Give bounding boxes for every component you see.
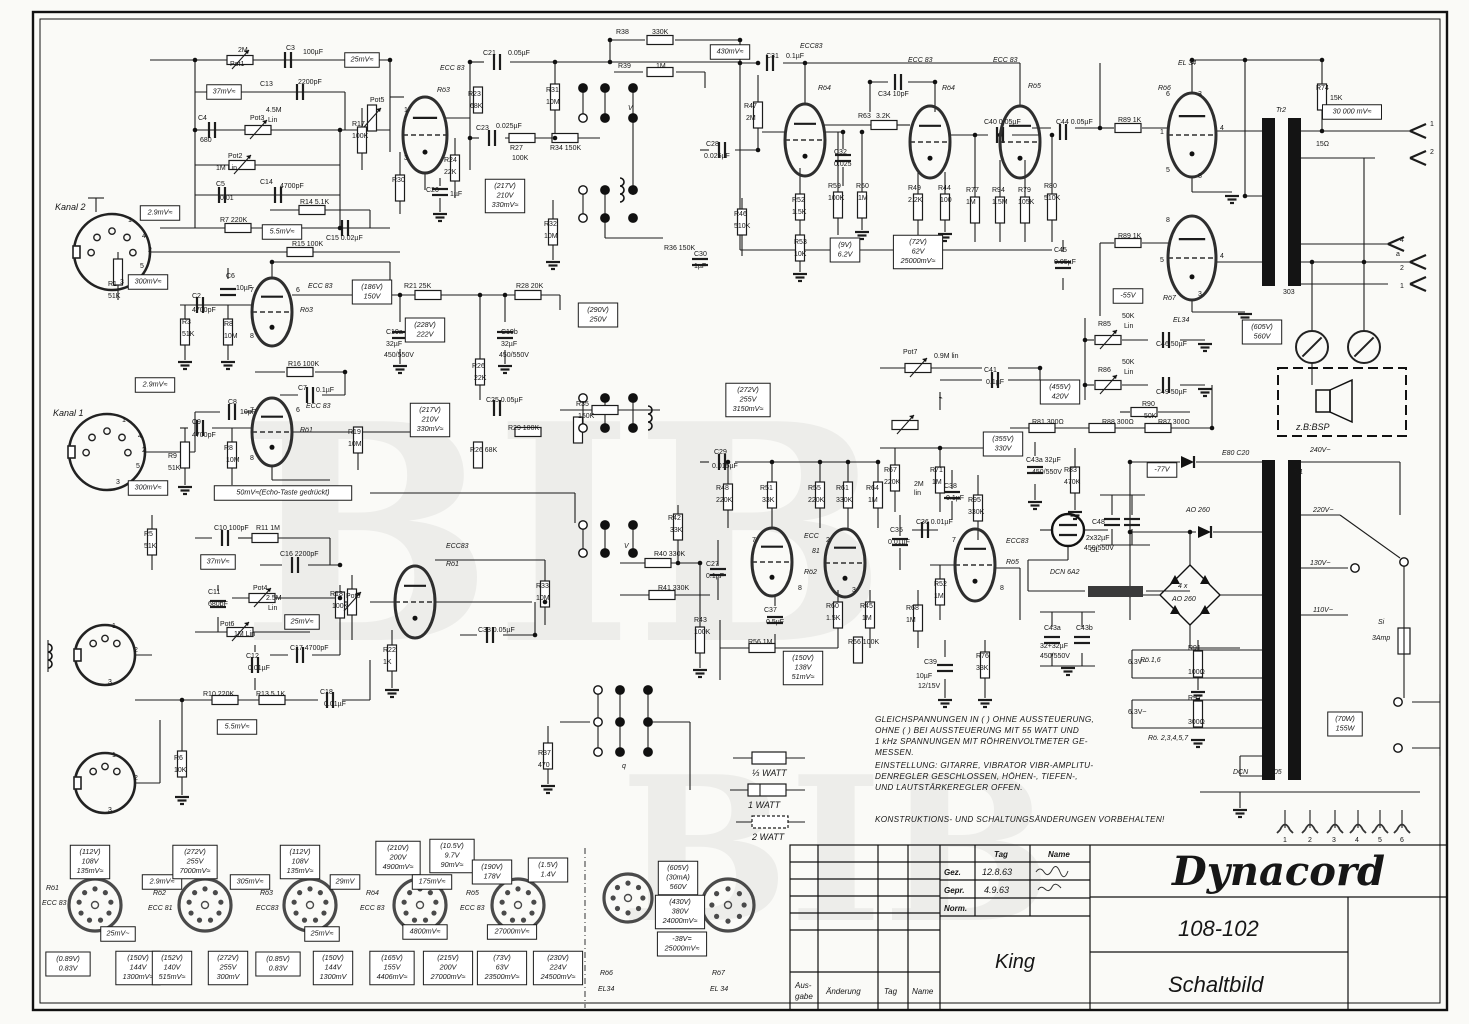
component-label: 0.01 — [220, 195, 234, 202]
socket-pin — [402, 900, 407, 905]
component-label: R49 — [908, 185, 921, 192]
component-label: Lin — [268, 117, 277, 124]
component-label: R81 300Ω — [1032, 419, 1064, 426]
socket-pin — [742, 902, 747, 907]
din-pin — [125, 449, 131, 455]
junction-dot — [478, 293, 483, 298]
note-line: GLEICHSPANNUNGEN IN ( ) OHNE AUSSTEUERUN… — [875, 715, 1094, 724]
component-label: 0.1µF — [946, 495, 964, 502]
component-label: R60 — [826, 603, 839, 610]
component-label: C34 10pF — [878, 91, 909, 98]
switch-contact — [629, 424, 637, 432]
component-label: 51K — [182, 331, 195, 338]
component-label: 3 — [1332, 837, 1336, 844]
component-label: C19a — [386, 329, 403, 336]
component-label: R42 — [668, 515, 681, 522]
socket-pin — [98, 918, 103, 923]
component-label: 2 — [148, 247, 152, 254]
component-label: 1M — [932, 479, 942, 486]
component-label: ECC83 — [800, 43, 823, 50]
component-label: Lin — [1124, 369, 1133, 376]
component-label: EL34 — [598, 986, 614, 993]
component-label: 100K — [352, 133, 369, 140]
switch-contact — [1400, 558, 1408, 566]
component-label: 8 — [798, 585, 802, 592]
component-label: C18 — [320, 689, 333, 696]
component-label: Rö7 — [1163, 295, 1177, 302]
junction-dot — [338, 226, 343, 231]
component-label: Rö5 — [1028, 83, 1041, 90]
component-label: R91 — [1188, 645, 1201, 652]
component-label: DCN 6A2 — [1050, 569, 1080, 576]
component-label: R5 — [144, 531, 153, 538]
dcn-rectifier-block — [1088, 586, 1143, 597]
component-label: 450/550V — [384, 352, 414, 359]
component-label: Pot5 — [370, 97, 385, 104]
output-terminal — [1410, 262, 1426, 269]
component-label: Rö3 — [260, 890, 273, 897]
component-label: 6.3V~ — [1128, 659, 1147, 666]
socket-pin — [501, 910, 506, 915]
socket-pin — [108, 900, 113, 905]
component-label: Rö4 — [818, 85, 831, 92]
voltage-label: 30 000 mV≈ — [1333, 107, 1372, 116]
component-label: 2 — [134, 647, 138, 654]
socket-pin — [428, 890, 433, 895]
speaker-example: z.B:BSP — [1278, 368, 1406, 436]
component-label: R9 — [168, 453, 177, 460]
component-label: C49 50µF — [1156, 389, 1187, 396]
component-label: 32+32µF — [1040, 643, 1068, 650]
component-label: 0.5µF — [766, 619, 784, 626]
component-label: C35 — [890, 527, 903, 534]
output-terminal — [1410, 284, 1426, 291]
voltage-label: 37mV≈ — [213, 87, 236, 96]
component-label: R60 — [856, 183, 869, 190]
switch-contact — [1394, 698, 1402, 706]
switch-contact — [601, 394, 609, 402]
switch-contact — [601, 186, 609, 194]
junction-dot — [1243, 58, 1248, 63]
component-label: C45 — [1054, 247, 1067, 254]
voltage-label: 25mV~ — [106, 929, 130, 938]
component-label: 5 — [140, 263, 144, 270]
component-label: Pot6 — [220, 621, 235, 628]
socket-pin — [526, 890, 531, 895]
switch-contact — [629, 394, 637, 402]
junction-dot — [398, 293, 403, 298]
component-label: 1M — [862, 615, 872, 622]
voltage-label: (186V)150V — [361, 282, 383, 301]
component-label: Lin — [268, 605, 277, 612]
component-label: R64 — [866, 485, 879, 492]
component-label: 6.3V~ — [1128, 709, 1147, 716]
component-label: R33 — [536, 583, 549, 590]
junction-dot — [676, 561, 681, 566]
component-label: Rö2 — [804, 569, 817, 576]
switch-contact — [579, 424, 587, 432]
component-label: R95 — [968, 497, 981, 504]
junction-dot — [1243, 194, 1248, 199]
component-label: 300Ω — [1188, 719, 1205, 726]
socket-pin — [318, 890, 323, 895]
coil-icon — [620, 178, 624, 202]
tube-cathode — [1190, 274, 1195, 279]
bridge-rectifier — [1160, 565, 1220, 625]
socket-pin — [412, 918, 417, 923]
model-name: King — [995, 951, 1035, 973]
switch-contact — [579, 549, 587, 557]
component-label: Rö7 — [712, 970, 726, 977]
component-label: C39 — [924, 659, 937, 666]
component-label: 2M — [914, 481, 924, 488]
component-label: 1K — [383, 659, 392, 666]
din-socket — [75, 625, 135, 685]
component-label: R51 — [760, 485, 773, 492]
component-label: R68 — [906, 605, 919, 612]
tube-cathode — [843, 576, 848, 581]
component-label: ECC — [804, 533, 820, 540]
component-label: ECC83 — [446, 543, 469, 550]
component-label: 4 — [138, 433, 142, 440]
component-label: R92 — [1188, 695, 1201, 702]
junction-dot — [738, 61, 743, 66]
component-label: R44 — [938, 185, 951, 192]
component-label: C21 — [483, 50, 496, 57]
junction-dot — [468, 136, 473, 141]
component-label: 450/550V — [1032, 469, 1062, 476]
component-label: C2 — [192, 293, 201, 300]
voltage-label: -77V — [1154, 465, 1170, 474]
tube-cathode — [270, 445, 275, 450]
component-label: 32µF — [386, 341, 402, 348]
component-label: R89 1K — [1118, 117, 1142, 124]
switch-contact — [601, 114, 609, 122]
resistor — [592, 406, 618, 415]
component-label: C33 0.05µF — [478, 627, 515, 634]
socket-pin — [213, 890, 218, 895]
component-label: Rö1 — [446, 561, 459, 568]
component-label: 1M — [656, 63, 666, 70]
component-label: R16 100K — [288, 361, 319, 368]
component-label: R30 — [392, 177, 405, 184]
diode-icon — [1198, 526, 1211, 538]
component-label: C43a — [1044, 625, 1061, 632]
socket-pin — [510, 918, 515, 923]
component-label: C25 0.05µF — [486, 397, 523, 404]
component-label: R56 1M — [748, 639, 773, 646]
voltage-label: (605V)(30mA)560V — [666, 863, 690, 891]
component-label: Pot2 — [228, 153, 243, 160]
voltage-label: 25mV≈ — [350, 55, 374, 64]
component-label: 1M — [934, 593, 944, 600]
switch-contact — [644, 686, 652, 694]
component-label: 81 — [812, 548, 820, 555]
din-pin — [109, 228, 115, 234]
note-line: UND LAUTSTÄRKEREGLER OFFEN. — [875, 782, 1023, 792]
component-label: ECC 83 — [360, 905, 385, 912]
junction-dot — [553, 136, 558, 141]
component-label: Lin — [1124, 323, 1133, 330]
socket-pin — [307, 886, 312, 891]
component-label: 51K — [168, 465, 181, 472]
component-label: 1.5M — [992, 199, 1008, 206]
socket-pin — [500, 900, 505, 905]
din-socket-notch — [73, 246, 80, 258]
component-label: R7 220K — [220, 217, 248, 224]
note-line: DENREGLER GESCHLOSSEN, HÖHEN-, TIEFEN-, — [875, 771, 1078, 781]
component-label: R8 — [224, 321, 233, 328]
component-label: Rö4 — [366, 890, 379, 897]
switch-contact — [579, 84, 587, 92]
component-label: 3 — [1198, 291, 1202, 298]
component-label: 5 — [1160, 257, 1164, 264]
junction-dot — [608, 38, 613, 43]
component-label: Rö4 — [942, 85, 955, 92]
voltage-label: (1.5V)1.4V — [538, 860, 558, 879]
socket-pin — [292, 900, 297, 905]
component-label: C16 2200pF — [280, 551, 319, 558]
component-label: C38 — [944, 483, 957, 490]
voltage-label: (228V)222V — [414, 320, 436, 339]
component-label: 3.2K — [876, 113, 891, 120]
component-label: 2 — [1400, 265, 1404, 272]
output-terminal — [1410, 151, 1426, 158]
component-label: 1.5K — [826, 615, 841, 622]
speaker-icon — [1316, 390, 1330, 412]
output-terminal — [1410, 255, 1426, 262]
component-label: 1 — [112, 623, 116, 630]
junction-dot — [1083, 338, 1088, 343]
component-label: 3 — [116, 479, 120, 486]
socket-pin — [78, 910, 83, 915]
tube-cathode — [270, 325, 275, 330]
output-terminal — [1410, 124, 1426, 131]
component-label: 2 — [1430, 149, 1434, 156]
component-label: 4 — [1400, 237, 1404, 244]
voltage-label: (0.85V)0.83V — [266, 954, 290, 973]
socket-pin — [321, 910, 326, 915]
diode-icon — [1181, 456, 1194, 468]
component-label: 2x32µF — [1086, 535, 1110, 542]
component-label: 330K — [652, 29, 669, 36]
component-label: C3 — [286, 45, 295, 52]
sheet-title: Schaltbild — [1168, 972, 1264, 997]
component-label: R76 — [976, 653, 989, 660]
socket-pin — [297, 890, 302, 895]
resistor — [415, 291, 441, 300]
component-label: 0.1µF — [316, 387, 334, 394]
resistor — [225, 224, 251, 233]
component-label: Rö1 — [46, 885, 59, 892]
component-label: R31 — [546, 87, 559, 94]
voltage-label: 50mV≈(Echo-Taste gedrückt) — [236, 488, 329, 497]
junction-dot — [1083, 383, 1088, 388]
watt-legend-item: 1 WATT — [748, 800, 782, 810]
component-label: R35 — [576, 401, 589, 408]
component-label: ECC 83 — [440, 65, 465, 72]
component-label: R36 150K — [664, 245, 695, 252]
component-label: 1M — [966, 199, 976, 206]
component-label: ECC 83 — [993, 57, 1018, 64]
component-label: R38 — [616, 29, 629, 36]
resistor — [647, 36, 673, 45]
component-label: 2.5M — [266, 595, 282, 602]
component-label: C7 — [298, 385, 307, 392]
component-label: a — [1396, 251, 1400, 258]
component-label: 0.01µF — [324, 701, 346, 708]
rev-col-tag: Tag — [884, 987, 898, 996]
switch-contact — [579, 521, 587, 529]
component-label: C30 — [694, 251, 707, 258]
switch-contact — [601, 214, 609, 222]
junction-dot — [1320, 58, 1325, 63]
component-label: 8 — [1198, 173, 1202, 180]
junction-dot — [468, 60, 473, 65]
component-label: ECC83 — [1006, 538, 1029, 545]
component-label: 10M — [224, 333, 238, 340]
component-label: 4700pF — [192, 307, 216, 314]
switch-contact — [601, 549, 609, 557]
voltage-label: (355V)330V — [992, 434, 1014, 453]
component-label: EL 34 — [1178, 60, 1196, 67]
socket-pin — [323, 900, 328, 905]
component-label: 1M Lin — [216, 165, 237, 172]
kanal-1-label: Kanal 1 — [53, 408, 84, 418]
voltage-label: 2.9mV≈ — [147, 208, 173, 217]
component-label: DCN — [1233, 769, 1249, 776]
schematic-canvas: BIB BIB 25mV≈37mV≈2.9mV≈300mV≈5.5mV≈(217… — [0, 0, 1469, 1024]
brand-logo: Dynacord — [1171, 848, 1385, 895]
component-label: 51K — [144, 543, 157, 550]
component-label: 1 — [1430, 121, 1434, 128]
component-label: 33K — [670, 527, 683, 534]
component-label: R67 — [884, 467, 897, 474]
din-pin — [94, 234, 100, 240]
voltage-label: (455V)420V — [1049, 382, 1071, 401]
switch-contact — [629, 114, 637, 122]
socket-pin — [521, 918, 526, 923]
component-label: C31 — [766, 53, 779, 60]
switch-contact — [601, 424, 609, 432]
component-label: C5 — [216, 181, 225, 188]
component-label: 1M — [906, 617, 916, 624]
component-label: 5 — [1378, 837, 1382, 844]
din-pin — [83, 449, 89, 455]
socket-pin — [216, 910, 221, 915]
component-label: 22K — [474, 375, 487, 382]
component-label: R83 — [1064, 467, 1077, 474]
rev-col-ausgabe2: gabe — [795, 992, 813, 1001]
component-label: 1 — [112, 752, 116, 759]
component-label: ECC 83 — [306, 403, 331, 410]
voltage-label: 5.5mV≈ — [270, 227, 295, 236]
component-label: R59 — [828, 183, 841, 190]
component-label: 8 — [250, 455, 254, 462]
junction-dot — [876, 460, 881, 465]
component-label: 100K — [512, 155, 529, 162]
voltage-label: 2.9mV≈ — [142, 380, 168, 389]
socket-pin — [615, 906, 620, 911]
switch-contact — [579, 186, 587, 194]
junction-dot — [553, 60, 558, 65]
din-socket-notch — [68, 446, 75, 458]
component-label: 1.5K — [792, 209, 807, 216]
socket-pin — [725, 919, 730, 924]
component-label: R39 — [618, 63, 631, 70]
component-label: R14 5.1K — [300, 199, 330, 206]
voltage-label: (0.89V)0.83V — [56, 954, 80, 973]
voltage-label: (70W)155W — [1335, 714, 1355, 733]
component-label: EL34 — [1173, 317, 1189, 324]
component-label: 3Amp — [1372, 635, 1390, 642]
transformer-winding — [1288, 460, 1301, 780]
component-label: R77 — [966, 187, 979, 194]
component-label: C37 — [764, 607, 777, 614]
component-label: 10K — [794, 251, 807, 258]
switch-contact — [1351, 564, 1359, 572]
component-label: 12/15V — [918, 683, 941, 690]
junction-dot — [1050, 133, 1055, 138]
component-label: 220K — [716, 497, 733, 504]
voltage-label: 25mV≈ — [290, 617, 314, 626]
junction-dot — [343, 370, 348, 375]
socket-center — [417, 902, 424, 909]
junction-dot — [1128, 530, 1133, 535]
resistor — [358, 127, 367, 153]
component-label: 3 — [108, 807, 112, 814]
component-label: 470K — [1064, 479, 1081, 486]
component-label: C41 — [984, 367, 997, 374]
socket-pin — [625, 881, 630, 886]
component-label: C17 4700pF — [290, 645, 329, 652]
socket-pin — [714, 914, 719, 919]
note-line: EINSTELLUNG: GITARRE, VIBRATOR VIBR-AMPL… — [875, 761, 1093, 770]
component-label: R32 — [544, 221, 557, 228]
component-label: C46 50µF — [1156, 341, 1187, 348]
component-label: R86 — [1098, 367, 1111, 374]
component-label: R19 — [348, 429, 361, 436]
component-label: 1M — [858, 195, 868, 202]
socket-pin — [709, 902, 714, 907]
tube-cathode — [928, 156, 933, 161]
component-label: R8 — [224, 445, 233, 452]
socket-pin — [737, 891, 742, 896]
component-label: Rö5 — [1006, 559, 1019, 566]
junction-dot — [818, 460, 823, 465]
tube-cathode — [770, 575, 775, 580]
component-label: 100K — [828, 195, 845, 202]
component-label: R87 300Ω — [1158, 419, 1190, 426]
resistor — [252, 534, 278, 543]
component-label: 130V~ — [1310, 560, 1330, 567]
component-label: C4 — [198, 115, 207, 122]
component-label: 450/550V — [1084, 545, 1114, 552]
output-terminal — [1410, 158, 1426, 165]
voltage-label: -55V — [1120, 291, 1136, 300]
component-label: R26 68K — [470, 447, 498, 454]
component-label: 4700pF — [192, 432, 216, 439]
wire — [1340, 515, 1400, 558]
disclaimer-note: KONSTRUKTIONS- UND SCHALTUNGSÄNDERUNGEN … — [875, 814, 1165, 824]
switch-contact — [579, 114, 587, 122]
junction-dot — [338, 563, 343, 568]
component-label: R74 — [1316, 85, 1329, 92]
din-pin — [104, 428, 110, 434]
resistor — [871, 121, 897, 130]
component-label: R47 — [744, 103, 757, 110]
component-label: 0.9M lin — [934, 353, 959, 360]
